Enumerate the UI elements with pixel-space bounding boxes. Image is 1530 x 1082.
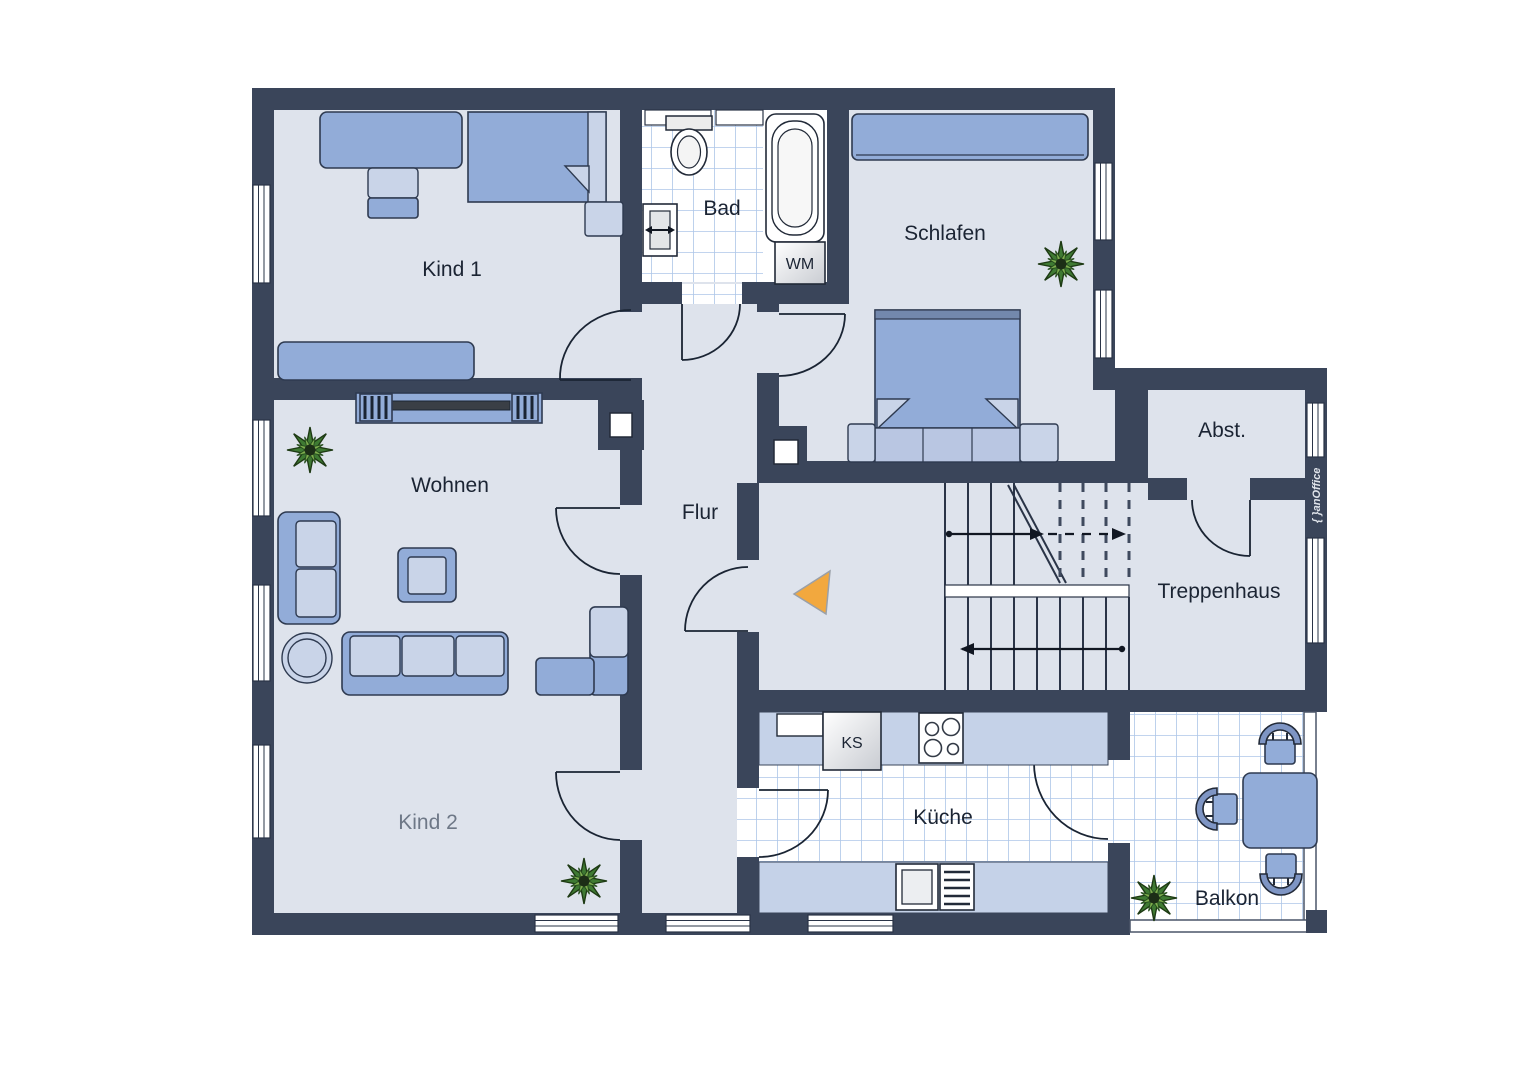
plant-icon xyxy=(287,427,333,473)
fridge-label: KS xyxy=(841,735,862,752)
room-label-kind2: Kind 2 xyxy=(398,811,458,834)
coffee-table-top xyxy=(408,557,446,594)
sideboard xyxy=(278,342,474,380)
room-label-bad: Bad xyxy=(703,197,740,220)
desk xyxy=(320,112,462,168)
window xyxy=(1095,163,1112,240)
window xyxy=(253,185,270,283)
bed-bench xyxy=(875,428,1020,462)
sofa-cushion xyxy=(296,521,336,567)
window xyxy=(716,110,763,125)
nightstand xyxy=(1020,424,1058,462)
floorplan-drawing: WM KS xyxy=(0,0,1530,1082)
shaft xyxy=(610,413,632,437)
window xyxy=(253,420,270,516)
toilet-tank xyxy=(666,116,712,130)
chaise-cushion xyxy=(590,607,628,657)
speaker xyxy=(360,394,392,421)
nightstand xyxy=(848,424,875,462)
balkon-door-threshold xyxy=(1108,760,1130,843)
shaft xyxy=(774,440,798,464)
room-label-abst: Abst. xyxy=(1198,419,1246,442)
room-label-schlafen: Schlafen xyxy=(904,222,986,245)
fridge: KS xyxy=(823,712,881,770)
chair-icon xyxy=(1260,854,1302,895)
bad-door-threshold xyxy=(682,284,742,304)
sofa-cushion xyxy=(350,636,400,676)
nightstand xyxy=(585,202,623,236)
anoffice-logo: { }anOffice xyxy=(1311,468,1323,523)
washing-machine-label: WM xyxy=(786,256,814,273)
chair-icon xyxy=(1196,788,1237,830)
side-table xyxy=(282,633,332,683)
washing-machine: WM xyxy=(775,242,825,284)
window xyxy=(1095,290,1112,358)
room-label-flur: Flur xyxy=(682,501,718,524)
chair-icon xyxy=(1259,723,1301,764)
sofa-cushion xyxy=(456,636,504,676)
tv xyxy=(388,401,510,410)
window xyxy=(535,915,618,932)
window xyxy=(253,745,270,838)
room-label-kueche: Küche xyxy=(913,806,973,829)
window xyxy=(808,915,893,932)
bed-headboard xyxy=(875,310,1020,319)
desk-chair xyxy=(368,198,418,218)
floorplan-page: WM KS xyxy=(0,0,1530,1082)
plant-icon xyxy=(561,858,607,904)
window xyxy=(1307,538,1324,643)
dishwasher-icon xyxy=(940,864,974,910)
balcony-table xyxy=(1243,773,1317,848)
sofa-cushion xyxy=(402,636,454,676)
room-label-wohnen: Wohnen xyxy=(411,474,489,497)
sofa-cushion xyxy=(296,569,336,617)
desk-chair xyxy=(368,168,418,198)
plant-icon xyxy=(1038,241,1084,287)
cooktop-icon xyxy=(919,713,963,763)
window xyxy=(253,585,270,681)
speaker xyxy=(512,394,538,421)
wardrobe xyxy=(852,114,1088,160)
kueche-door-threshold xyxy=(737,788,759,857)
room-label-balkon: Balkon xyxy=(1195,887,1259,910)
radiator-icon xyxy=(643,204,677,256)
chaise xyxy=(536,658,594,695)
bathtub-icon xyxy=(766,114,824,242)
counter-niche xyxy=(777,714,823,736)
window xyxy=(666,915,750,932)
sink-icon xyxy=(896,864,938,910)
bed-headboard xyxy=(588,112,606,202)
plant-icon xyxy=(1131,875,1177,921)
room-label-treppenhaus: Treppenhaus xyxy=(1158,580,1281,603)
window xyxy=(1307,403,1324,457)
room-label-kind1: Kind 1 xyxy=(422,258,482,281)
